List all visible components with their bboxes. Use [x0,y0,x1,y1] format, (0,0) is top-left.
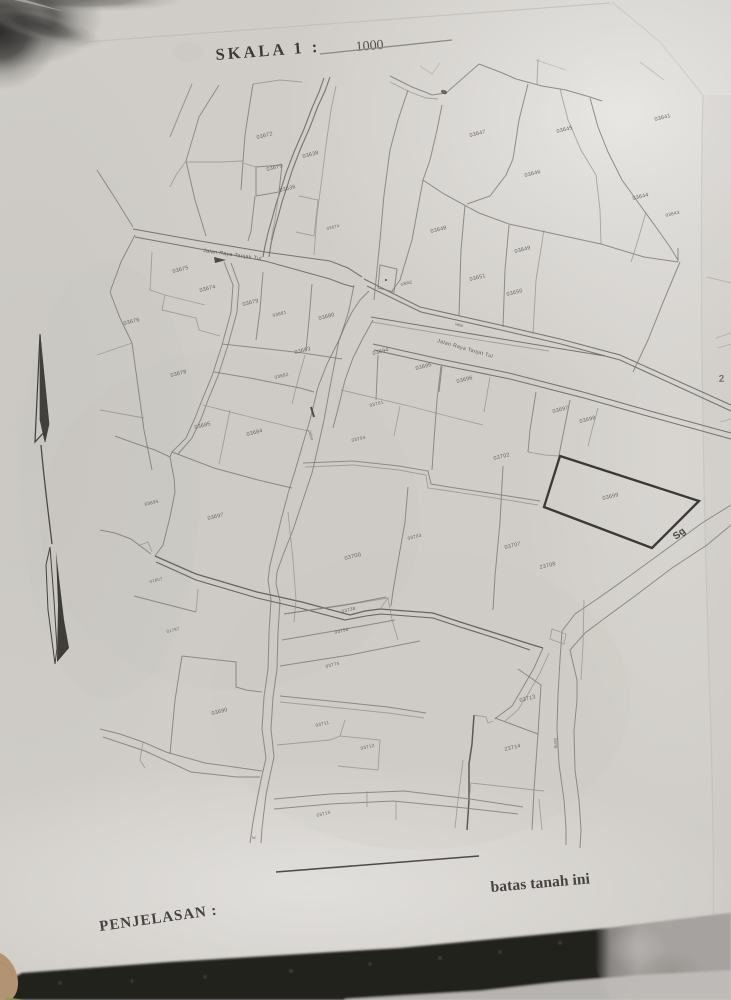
svg-text:1000: 1000 [355,38,384,55]
svg-text:Sung: Sung [553,738,559,749]
